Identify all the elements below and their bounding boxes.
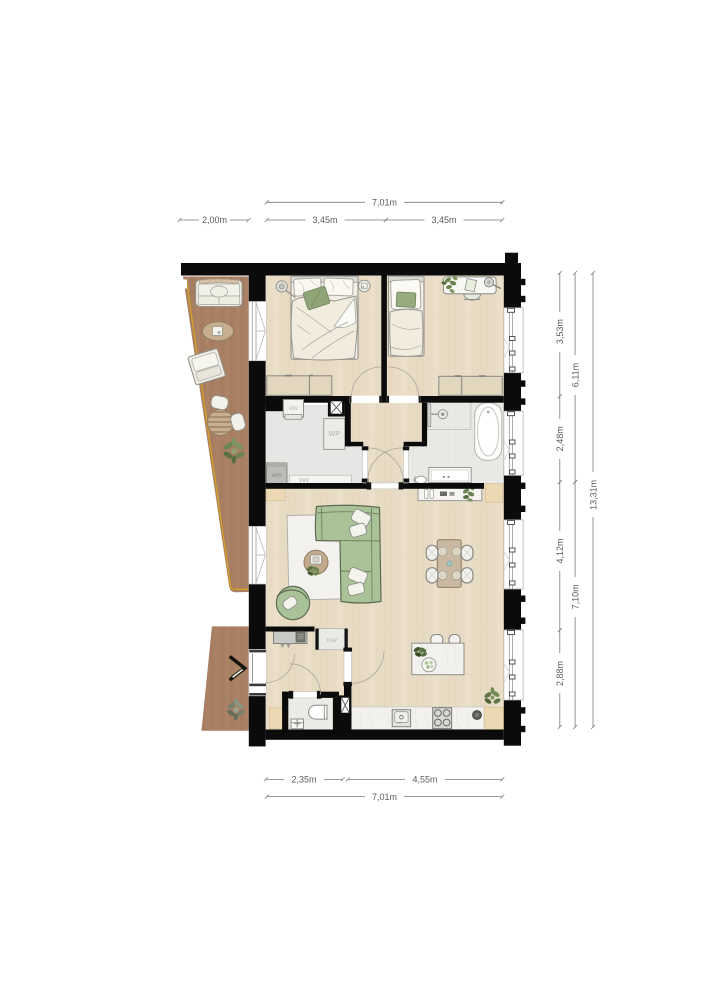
svg-text:mw: mw <box>327 637 337 644</box>
svg-text:4,12m: 4,12m <box>555 538 565 563</box>
svg-text:7,01m: 7,01m <box>372 792 397 802</box>
svg-text:2,35m: 2,35m <box>291 775 316 785</box>
svg-text:3,53m: 3,53m <box>555 319 565 344</box>
svg-text:vvv: vvv <box>299 477 310 484</box>
svg-text:2,88m: 2,88m <box>555 661 565 686</box>
svg-text:13,31m: 13,31m <box>588 480 598 510</box>
svg-text:3,45m: 3,45m <box>312 215 337 225</box>
svg-text:4,55m: 4,55m <box>412 775 437 785</box>
svg-text:2,48m: 2,48m <box>555 426 565 451</box>
svg-text:2,00m: 2,00m <box>202 215 227 225</box>
svg-text:7,01m: 7,01m <box>372 198 397 208</box>
svg-text:6,11m: 6,11m <box>571 363 581 387</box>
svg-text:WP: WP <box>329 431 341 438</box>
svg-text:7,10m: 7,10m <box>571 584 581 609</box>
svg-text:wm: wm <box>271 472 282 479</box>
svg-text:3,45m: 3,45m <box>431 215 456 225</box>
svg-text:vtw: vtw <box>289 406 299 412</box>
